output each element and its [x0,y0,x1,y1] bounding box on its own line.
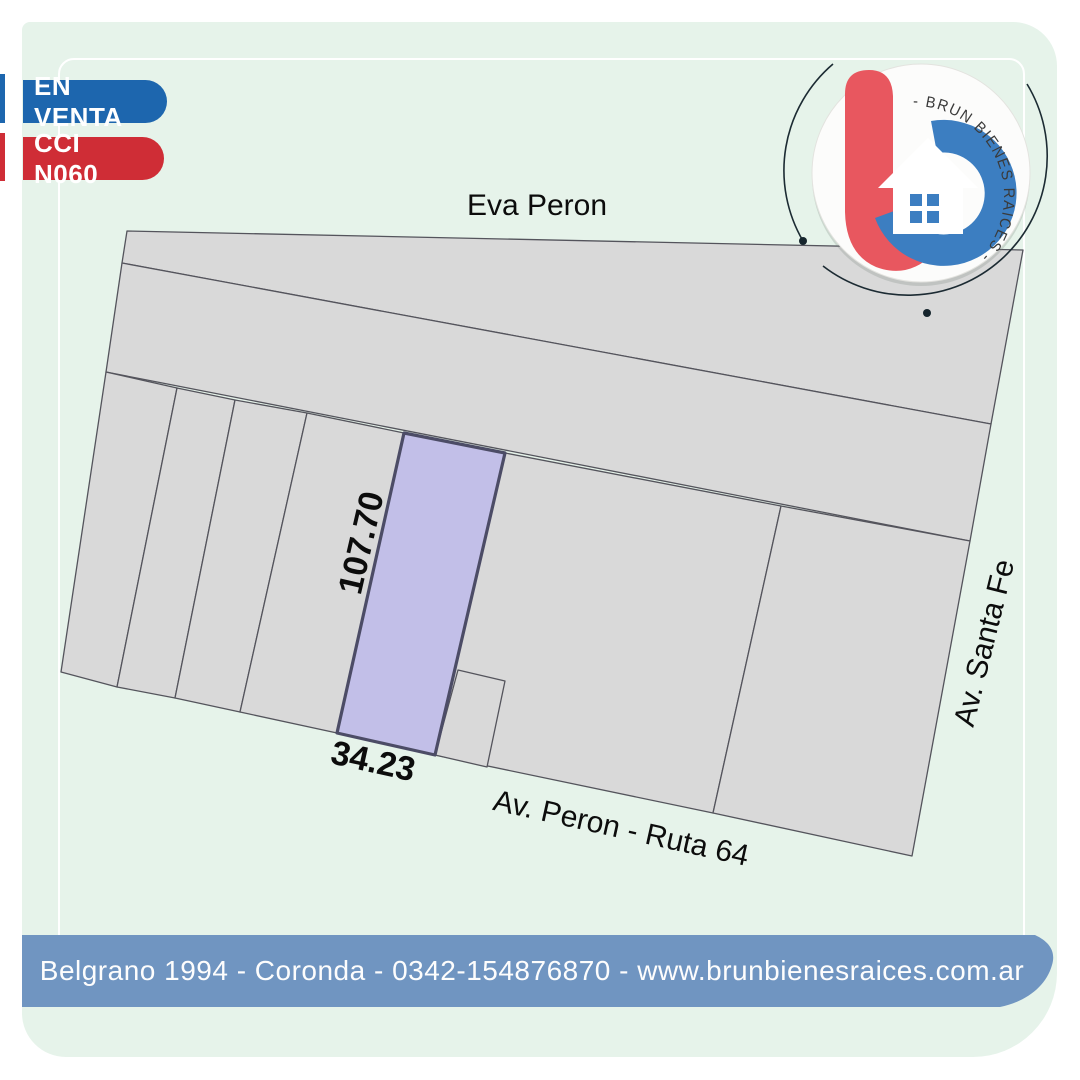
status-badge: EN VENTA [23,80,167,123]
code-badge: CCI N060 [23,137,164,180]
code-badge-sliver [0,133,5,181]
logo-arc-dot-left [799,237,807,245]
status-badge-sliver [0,74,5,123]
flyer-canvas: Eva Peron Av. Santa Fe Av. Peron - Ruta … [0,0,1080,1080]
logo-arc-dot-bottom [923,309,931,317]
